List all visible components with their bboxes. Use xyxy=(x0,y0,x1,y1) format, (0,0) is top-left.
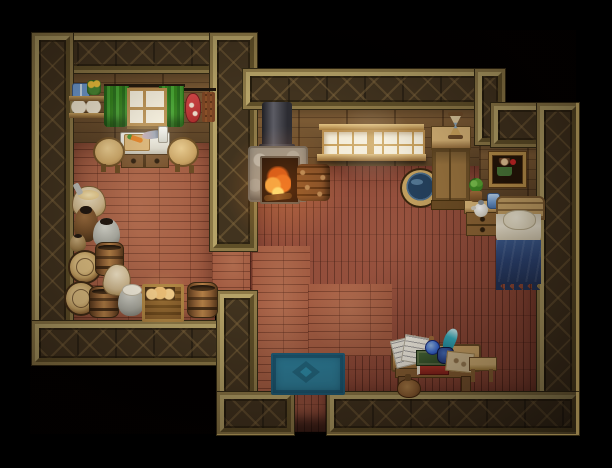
bread-loaves xyxy=(145,287,175,300)
pot-cloth xyxy=(118,286,144,316)
firewood-ends xyxy=(298,166,329,199)
bread-crate xyxy=(142,284,184,322)
pouch-tie xyxy=(405,374,411,381)
stool-left xyxy=(93,137,125,167)
bed-pillow xyxy=(503,210,536,230)
main-floor-light-step xyxy=(308,284,392,356)
hourglass-glass xyxy=(450,116,461,135)
meat-slab xyxy=(185,93,201,123)
hourglass xyxy=(448,112,463,139)
counter-drawers xyxy=(121,154,169,168)
stove-pipe xyxy=(262,102,292,152)
kitchen-window xyxy=(127,88,167,126)
pot-cloth-cover xyxy=(122,284,142,296)
teapot-lid xyxy=(478,200,484,205)
leather-pouch xyxy=(397,374,420,396)
big-window-sill xyxy=(317,154,426,161)
plant-leaves xyxy=(469,178,483,192)
hourglass-cap-bottom xyxy=(448,135,463,139)
fireplace-opening xyxy=(260,156,300,204)
door-mat-rug xyxy=(271,353,345,395)
portrait-flower xyxy=(510,159,516,165)
meat-rack-bar xyxy=(184,88,216,91)
desk-stool xyxy=(469,357,495,383)
wall-bottom-left xyxy=(220,395,291,432)
salt-jar xyxy=(158,126,168,143)
big-window xyxy=(319,124,424,160)
wall-main-top xyxy=(246,72,502,106)
hourglass-cap-top xyxy=(448,112,463,116)
wall-kitchen-left xyxy=(35,36,70,362)
barrel-3 xyxy=(187,282,218,318)
cabinet-doors xyxy=(432,148,470,202)
meat-rack xyxy=(184,87,216,127)
wall-kitchen-bottom xyxy=(35,324,225,362)
bed-blanket xyxy=(496,240,541,284)
shelf-flowers xyxy=(87,80,101,95)
shelf-unit xyxy=(69,79,105,119)
bed xyxy=(496,196,541,292)
desk-stool-legs xyxy=(471,369,493,382)
picture-frame xyxy=(489,152,526,187)
shelf-board-bottom xyxy=(69,113,105,118)
wall-right xyxy=(540,106,576,432)
teapot-body xyxy=(474,203,488,217)
sausages xyxy=(202,92,215,122)
pouch-body xyxy=(397,379,421,398)
curtain-left xyxy=(104,86,129,127)
game-viewport[interactable] xyxy=(0,0,612,468)
wall-divider-upper xyxy=(213,36,254,248)
kitchen-counter xyxy=(120,126,168,166)
firewood-stack xyxy=(297,164,330,201)
passage-floor xyxy=(212,246,254,296)
stool-right xyxy=(167,137,199,167)
bed-blanket-fringe xyxy=(496,282,541,290)
wall-bottom-right xyxy=(330,395,576,432)
water-shine xyxy=(411,179,423,185)
